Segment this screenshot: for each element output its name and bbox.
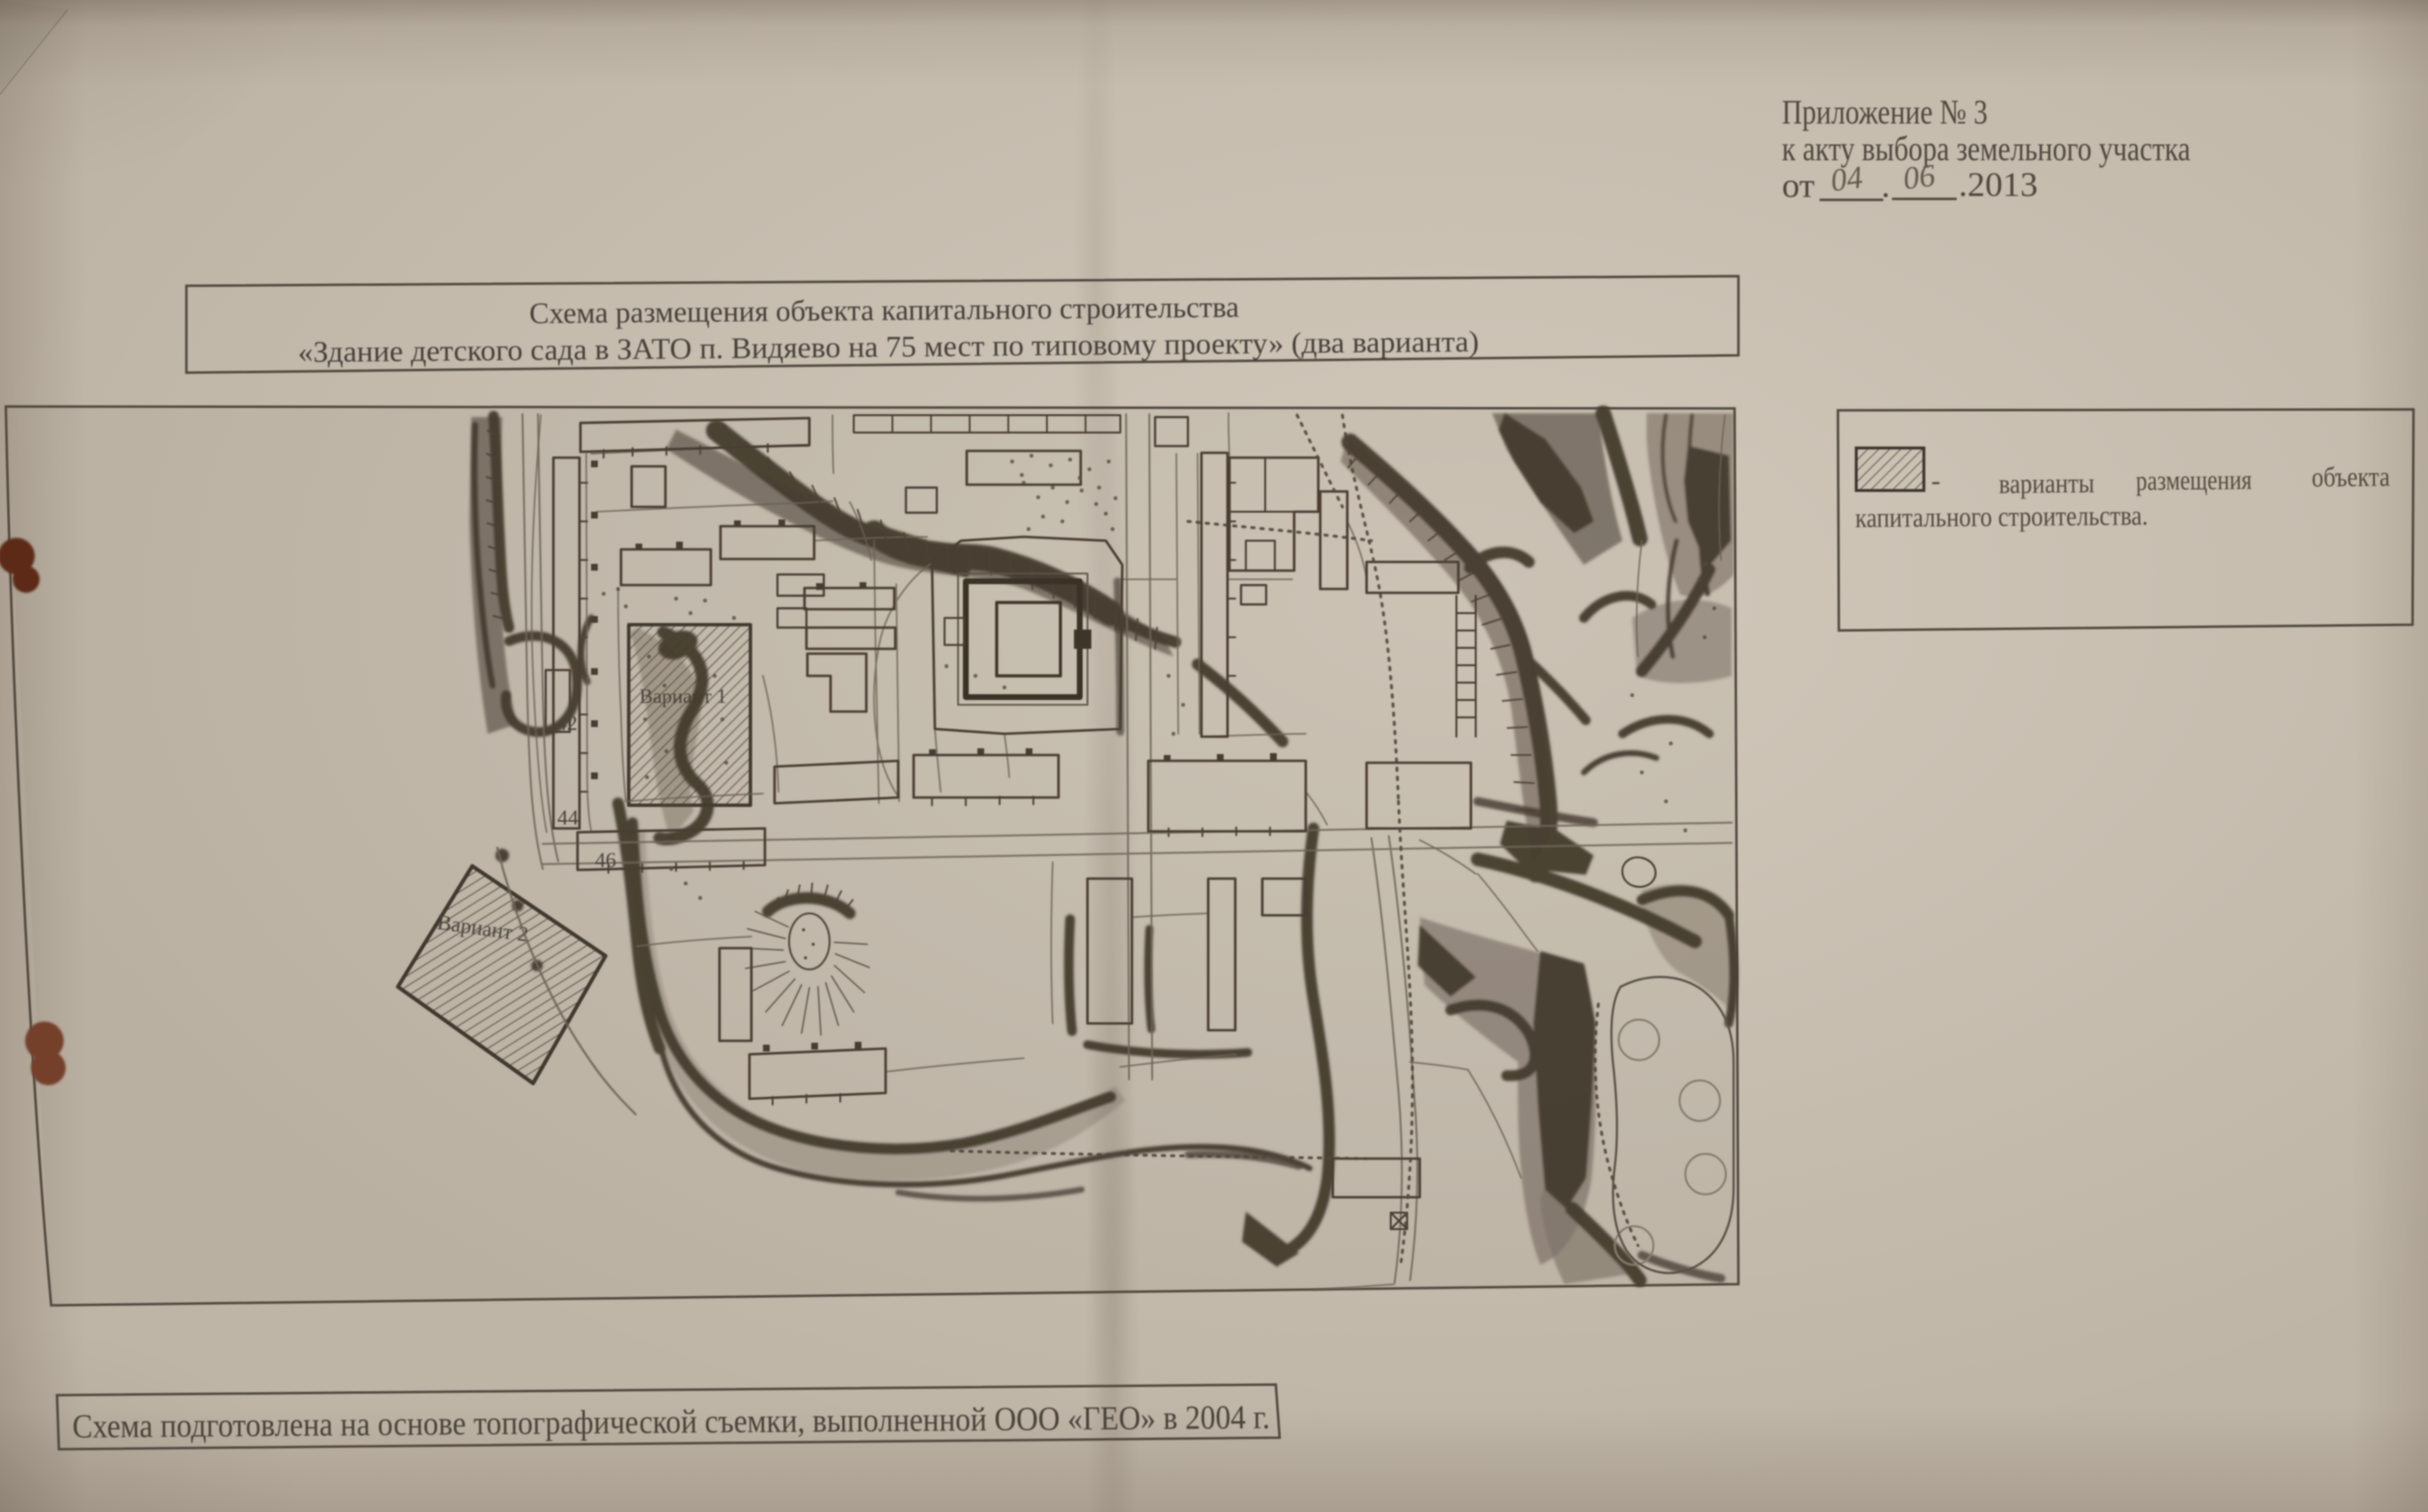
- svg-text:размещения: размещения: [2135, 464, 2251, 496]
- svg-text:варианты: варианты: [1998, 468, 2094, 500]
- svg-text:Схема размещения объекта капит: Схема размещения объекта капитального ст…: [529, 290, 1240, 330]
- svg-text:-: -: [1931, 465, 1940, 496]
- svg-text:объекта: объекта: [2311, 462, 2389, 493]
- svg-text:капитального строительства.: капитального строительства.: [1855, 500, 2148, 534]
- svg-text:46: 46: [595, 848, 616, 872]
- svg-text:06: 06: [1902, 158, 1938, 197]
- svg-text:.2013: .2013: [1959, 165, 2038, 204]
- svg-text:42: 42: [556, 711, 578, 735]
- svg-text:«Здание детского сада в ЗАТО п: «Здание детского сада в ЗАТО п. Видяево …: [297, 324, 1479, 369]
- svg-text:от: от: [1782, 166, 1815, 205]
- svg-text:44: 44: [557, 805, 579, 829]
- svg-text:.: .: [1881, 166, 1890, 205]
- svg-text:Приложение № 3: Приложение № 3: [1782, 93, 1988, 131]
- svg-text:04: 04: [1829, 160, 1865, 199]
- svg-text:Схема подготовлена на основе т: Схема подготовлена на основе топографиче…: [72, 1398, 1270, 1445]
